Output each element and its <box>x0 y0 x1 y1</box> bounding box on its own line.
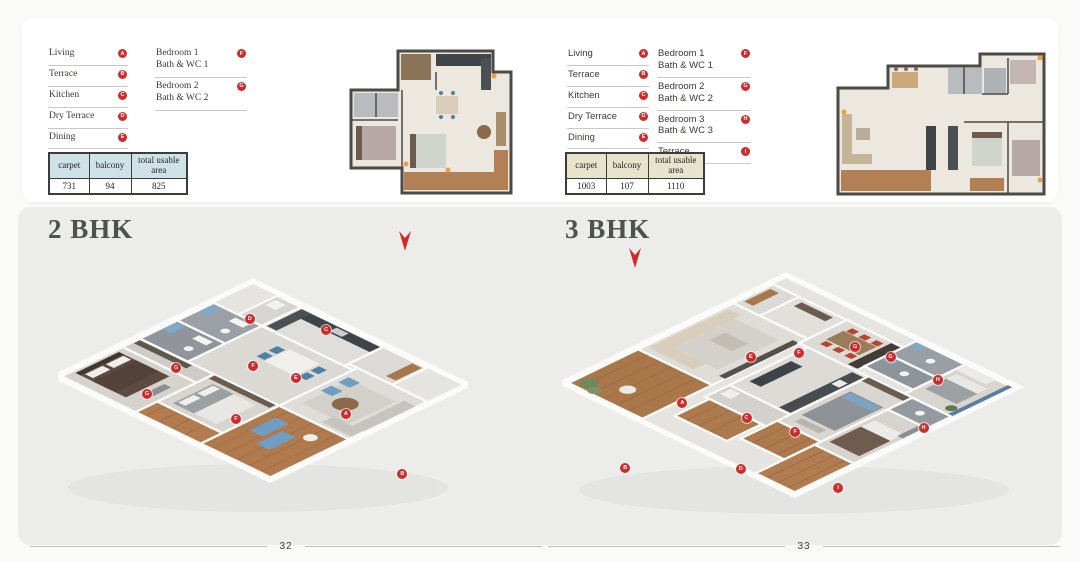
legend-marker-icon: A <box>639 49 648 58</box>
legend-marker-icon: F <box>741 49 750 58</box>
plan-marker-e: E <box>291 373 301 383</box>
plan-marker-g: G <box>850 342 860 352</box>
area-table-value: 825 <box>131 178 187 194</box>
legend-bedrooms-2bhk: Bedroom 1Bath & WC 1FBedroom 2Bath & WC … <box>155 46 247 112</box>
legend-item: TerraceB <box>567 67 649 87</box>
legend-marker-icon: E <box>639 133 648 142</box>
area-table-2bhk: carpetbalconytotal usable area73194825 <box>48 152 188 195</box>
legend-label: Terrace <box>49 69 77 81</box>
legend-marker-icon: A <box>118 49 127 58</box>
area-table-value: 107 <box>606 178 648 194</box>
area-table-value: 1110 <box>648 178 704 194</box>
page-number: 32 <box>279 541 292 552</box>
spec-card: LivingATerraceBKitchenCDry TerraceDDinin… <box>22 18 1058 202</box>
legend-item: Bedroom 1Bath & WC 1F <box>657 46 751 78</box>
legend-label: Dining <box>49 132 75 144</box>
legend-marker-icon: B <box>639 70 648 79</box>
plan-marker-c: C <box>742 413 752 423</box>
legend-item: LivingA <box>567 46 649 66</box>
legend-label: Bedroom 3Bath & WC 3 <box>658 114 713 138</box>
plan-marker-b: B <box>620 463 630 473</box>
legend-marker-icon: I <box>741 147 750 156</box>
footer-rule <box>823 546 1060 547</box>
plan-marker-h: H <box>933 375 943 385</box>
legend-item: DiningE <box>567 130 649 150</box>
area-table-header: balcony <box>89 153 131 178</box>
legend-rooms-3bhk: LivingATerraceBKitchenCDry TerraceDDinin… <box>567 46 649 150</box>
legend-marker-icon: H <box>741 115 750 124</box>
legend-label: Bedroom 1Bath & WC 1 <box>156 48 208 72</box>
legend-label: Dry Terrace <box>49 111 94 123</box>
page-number: 33 <box>797 541 810 552</box>
plan-marker-f: F <box>231 414 241 424</box>
floorplan-topview-2bhk <box>344 46 522 198</box>
legend-marker-icon: B <box>118 70 127 79</box>
legend-item: Bedroom 2Bath & WC 2G <box>155 79 247 111</box>
area-table-header: total usable area <box>131 153 187 178</box>
legend-label: Kitchen <box>568 90 600 102</box>
legend-item: LivingA <box>48 46 128 66</box>
legend-marker-icon: F <box>237 49 246 58</box>
legend-rooms-2bhk: LivingATerraceBKitchenCDry TerraceDDinin… <box>48 46 128 150</box>
legend-item: Bedroom 2Bath & WC 2G <box>657 79 751 111</box>
plan-marker-h: H <box>919 423 929 433</box>
plan-marker-a: A <box>341 409 351 419</box>
area-table-3bhk: carpetbalconytotal usable area1003107111… <box>565 152 705 195</box>
page-title-3bhk: 3 BHK <box>565 214 650 245</box>
legend-marker-icon: C <box>639 91 648 100</box>
plan-marker-g: G <box>142 389 152 399</box>
legend-label: Bedroom 2Bath & WC 2 <box>658 81 713 105</box>
area-table-value: 94 <box>89 178 131 194</box>
legend-label: Living <box>49 48 74 60</box>
footer-left: 32 <box>30 541 542 552</box>
page-title-2bhk: 2 BHK <box>48 214 133 245</box>
footer-rule <box>305 546 542 547</box>
legend-bedrooms-3bhk: Bedroom 1Bath & WC 1FBedroom 2Bath & WC … <box>657 46 751 165</box>
legend-item: KitchenC <box>567 88 649 108</box>
floorplan-3d-3bhk: EFGGHACFHBDI <box>562 244 1034 536</box>
area-table-header: carpet <box>566 153 606 178</box>
plan-marker-g: G <box>886 352 896 362</box>
plan-marker-f: F <box>794 348 804 358</box>
plan-marker-i: I <box>833 483 843 493</box>
legend-item: KitchenC <box>48 88 128 108</box>
legend-item: Bedroom 1Bath & WC 1F <box>155 46 247 78</box>
legend-label: Bedroom 1Bath & WC 1 <box>658 48 713 72</box>
legend-item: Bedroom 3Bath & WC 3H <box>657 112 751 144</box>
legend-item: Dry TerraceD <box>48 109 128 129</box>
plan-marker-g: G <box>171 363 181 373</box>
legend-item: TerraceB <box>48 67 128 87</box>
floorplan-topview-3bhk <box>830 48 1052 200</box>
floorplan-3d-2bhk: DCGFEAGFB <box>58 246 468 536</box>
legend-label: Living <box>568 48 593 60</box>
legend-marker-icon: G <box>741 82 750 91</box>
footer-rule <box>30 546 267 547</box>
area-table-header: total usable area <box>648 153 704 178</box>
area-table-value: 1003 <box>566 178 606 194</box>
legend-marker-icon: D <box>118 112 127 121</box>
legend-label: Dry Terrace <box>568 111 617 123</box>
footer-rule <box>548 546 785 547</box>
footer-right: 33 <box>548 541 1060 552</box>
legend-item: DiningE <box>48 130 128 150</box>
legend-label: Bedroom 2Bath & WC 2 <box>156 81 208 105</box>
legend-item: Dry TerraceD <box>567 109 649 129</box>
legend-marker-icon: C <box>118 91 127 100</box>
legend-marker-icon: G <box>237 82 246 91</box>
legend-marker-icon: E <box>118 133 127 142</box>
legend-label: Kitchen <box>49 90 79 102</box>
area-table-value: 731 <box>49 178 89 194</box>
plan-marker-d: D <box>245 314 255 324</box>
legend-label: Terrace <box>568 69 600 81</box>
plan-marker-e: E <box>746 352 756 362</box>
area-table-header: balcony <box>606 153 648 178</box>
legend-label: Dining <box>568 132 595 144</box>
legend-marker-icon: D <box>639 112 648 121</box>
area-table-header: carpet <box>49 153 89 178</box>
